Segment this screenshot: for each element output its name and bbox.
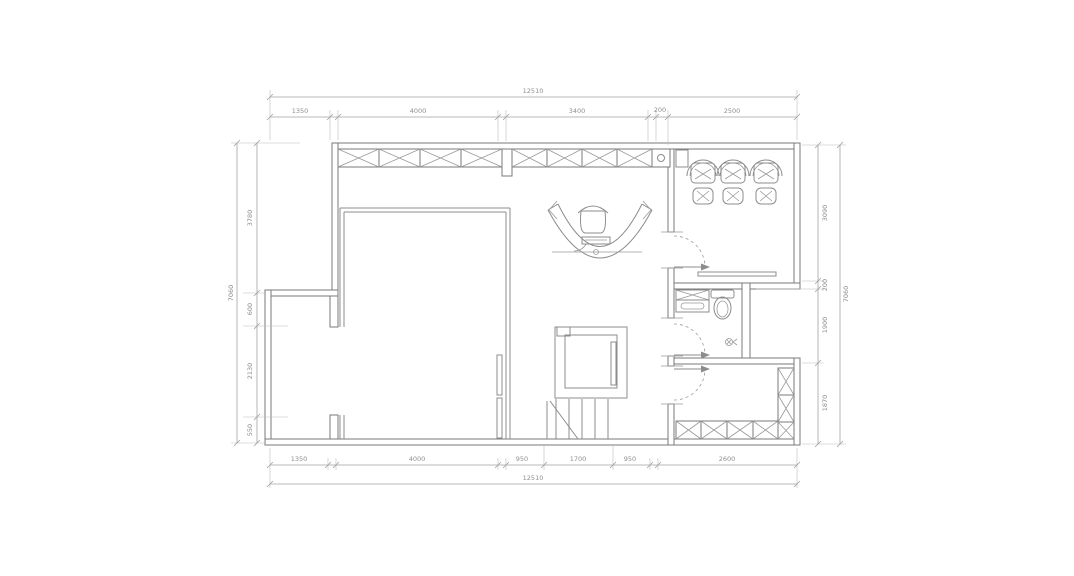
wall-corridor-c xyxy=(668,356,674,366)
wall-left-upper xyxy=(332,143,338,296)
floor-plan-drawing: 12510 1350 4000 3400 200 2500 1350 4000 … xyxy=(0,0,1074,576)
door-jamb-ticks xyxy=(661,232,683,404)
dim-bottom-seg-0: 1350 xyxy=(291,455,308,463)
corner-cabinet xyxy=(676,150,688,167)
dim-top-total: 12510 xyxy=(523,87,544,95)
reception-desk xyxy=(548,201,652,258)
dim-bottom-seg-1: 4000 xyxy=(409,455,426,463)
armchair xyxy=(750,160,782,183)
dim-bottom-total: 12510 xyxy=(523,474,544,482)
stair-break-line xyxy=(550,401,578,439)
cable xyxy=(574,240,607,251)
armchair xyxy=(717,160,749,183)
wall-corridor-d xyxy=(668,404,674,445)
wall-column xyxy=(330,296,338,327)
dim-right-total: 7060 xyxy=(842,286,850,303)
dim-left-seg-1: 600 xyxy=(246,303,254,315)
dim-top-seg-1: 4000 xyxy=(410,107,427,115)
ottoman xyxy=(756,188,776,204)
ottoman xyxy=(723,188,743,204)
waiting-room xyxy=(676,150,782,276)
vanity-sink xyxy=(676,290,709,312)
wall-waiting-bottom xyxy=(668,283,800,289)
dim-right-seg-2: 1900 xyxy=(821,317,829,334)
dim-bottom-seg-5: 2600 xyxy=(719,455,736,463)
elevator-door-panel xyxy=(611,342,616,385)
wall-column xyxy=(330,415,338,439)
toilet xyxy=(711,290,734,319)
staircase xyxy=(547,399,608,439)
dim-right-seg-1: 200 xyxy=(821,279,829,291)
wardrobe-cabinets xyxy=(676,368,794,439)
wall-right-upper xyxy=(794,143,800,289)
swing-door-bathroom xyxy=(674,324,710,359)
dim-left-total: 7060 xyxy=(227,285,235,302)
walls xyxy=(265,143,800,445)
big-room xyxy=(330,208,510,439)
wall-stub-top xyxy=(502,149,512,176)
sliding-door-panel xyxy=(497,355,502,395)
floor-plan-canvas: 12510 1350 4000 3400 200 2500 1350 4000 … xyxy=(0,0,1074,576)
wall-left-lower xyxy=(265,290,271,445)
dim-bottom-seg-4: 950 xyxy=(624,455,636,463)
dim-top-seg-3: 200 xyxy=(654,106,666,114)
wall-bath-bottom xyxy=(668,358,800,364)
wall-notch-vertical xyxy=(742,283,750,364)
wall-step xyxy=(265,290,338,296)
wall-corridor-b xyxy=(668,268,674,318)
dim-left-seg-0: 3780 xyxy=(246,210,254,227)
ottoman xyxy=(693,188,713,204)
dim-top-seg-4: 2500 xyxy=(724,107,741,115)
elevator xyxy=(555,327,627,398)
wall-bottom xyxy=(265,439,800,445)
armchair xyxy=(687,160,719,183)
dim-bottom-seg-3: 1700 xyxy=(570,455,587,463)
window-strip xyxy=(338,149,670,176)
keyboard xyxy=(582,237,610,244)
dim-left-seg-3: 550 xyxy=(246,424,254,436)
floor-drain xyxy=(726,339,738,346)
dim-top-seg-0: 1350 xyxy=(292,107,309,115)
wall-top xyxy=(332,143,800,149)
swing-doors xyxy=(661,232,710,404)
office-chair-seat xyxy=(581,211,606,233)
wall-right-lower xyxy=(794,358,800,445)
dim-left-seg-2: 2130 xyxy=(246,363,254,380)
column-box xyxy=(652,149,670,167)
dim-bottom-seg-2: 950 xyxy=(516,455,528,463)
dim-right-seg-0: 3090 xyxy=(821,205,829,222)
sliding-door-panel xyxy=(497,398,502,438)
bathroom xyxy=(676,290,737,346)
dim-top-seg-2: 3400 xyxy=(569,107,586,115)
swing-door-bedroom xyxy=(674,366,710,401)
office-chair-back xyxy=(578,206,608,213)
swing-door-waiting xyxy=(674,236,710,271)
side-shelf xyxy=(698,272,776,276)
dim-right-seg-3: 1870 xyxy=(821,395,829,412)
